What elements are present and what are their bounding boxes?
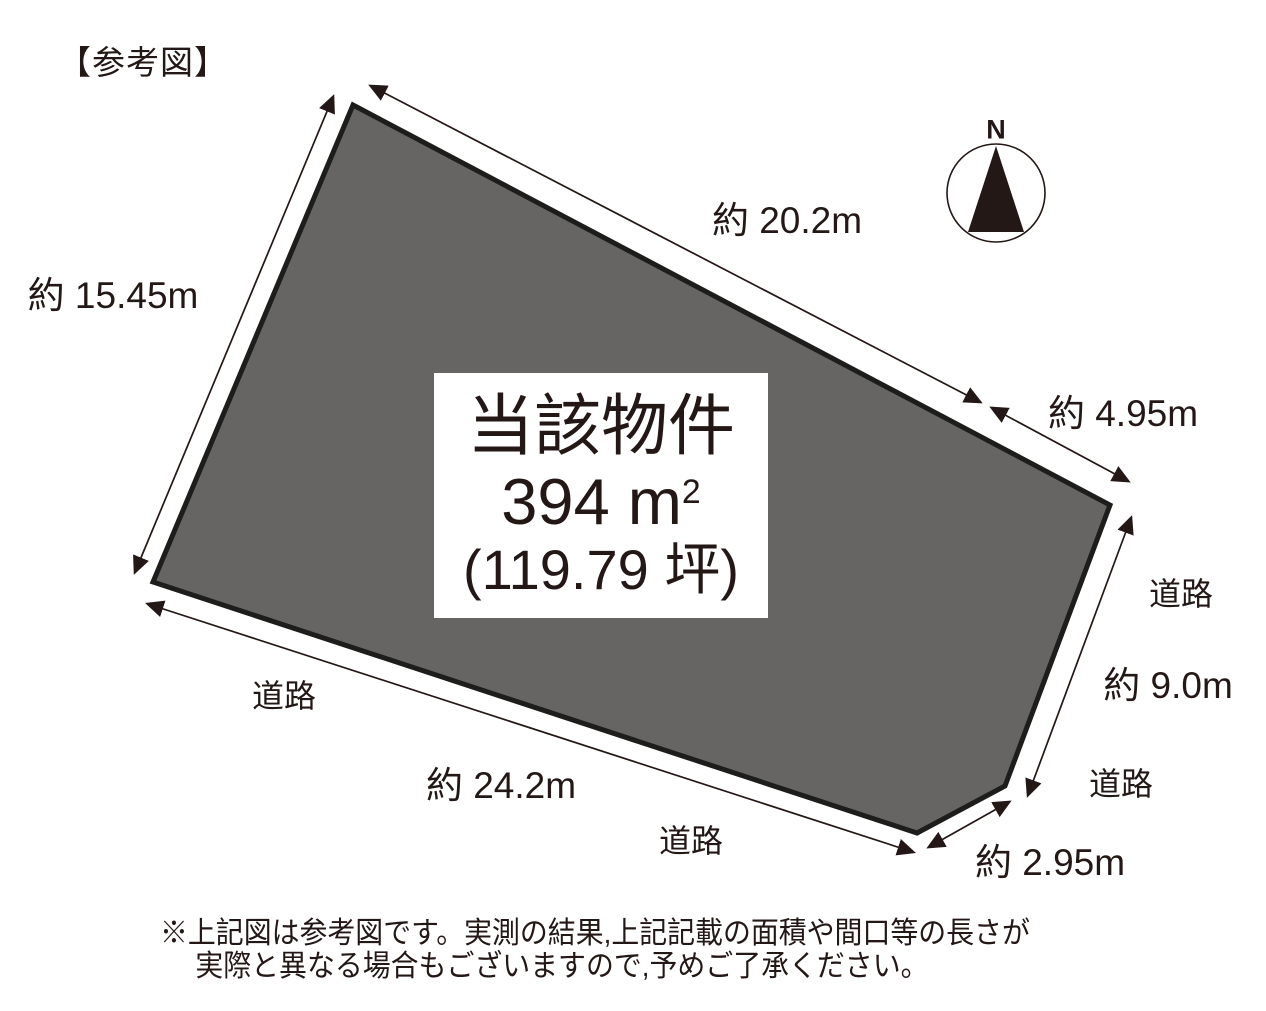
road-label-right-upper: 道路	[1149, 569, 1213, 615]
property-area-value: 394 m	[501, 465, 682, 538]
compass-needle-icon	[968, 146, 1024, 232]
disclaimer-line-1: ※上記図は参考図です。実測の結果,上記記載の面積や間口等の長さが	[160, 917, 1030, 950]
disclaimer-note: ※上記図は参考図です。実測の結果,上記記載の面積や間口等の長さが 実際と異なる場…	[160, 917, 1030, 983]
road-label-bottom: 道路	[659, 816, 723, 862]
dimension-label-lower-right: 約 2.95m	[975, 832, 1125, 886]
property-area: 394 m2	[501, 465, 700, 538]
dimension-label-left: 約 15.45m	[28, 265, 199, 319]
property-area-tsubo: (119.79 坪)	[463, 538, 739, 601]
reference-land-diagram: 【参考図】 N 約 15.45m 約 20.2m 約 4.95m 約 9.0m …	[0, 0, 1266, 1011]
compass-north-label: N	[986, 115, 1006, 146]
property-label-box: 当該物件 394 m2 (119.79 坪)	[434, 373, 768, 618]
property-name: 当該物件	[467, 389, 735, 465]
disclaimer-line-2: 実際と異なる場合もございますので,予めご了承ください。	[160, 950, 1030, 983]
property-area-superscript: 2	[682, 473, 701, 511]
page-title: 【参考図】	[58, 36, 228, 84]
dimension-label-top: 約 20.2m	[712, 190, 862, 244]
dimension-label-upper-right: 約 4.95m	[1048, 383, 1198, 437]
road-label-left: 道路	[252, 671, 316, 717]
dimension-label-bottom: 約 24.2m	[426, 755, 576, 809]
dimension-label-right: 約 9.0m	[1103, 655, 1233, 709]
road-label-right-lower: 道路	[1089, 759, 1153, 805]
